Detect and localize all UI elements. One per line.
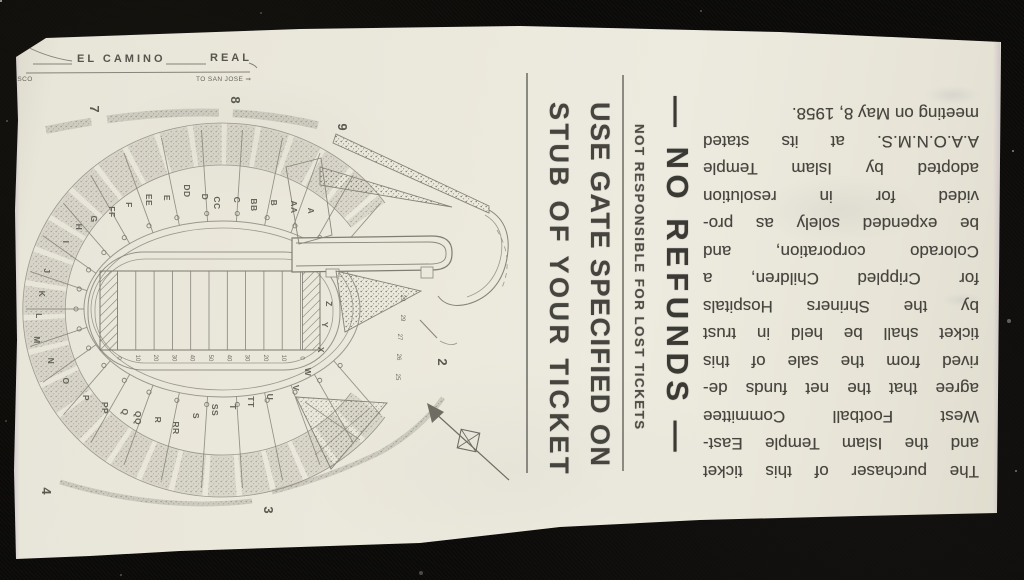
legal-paragraph: The purchaser of this ticket and the Isl… bbox=[703, 100, 979, 485]
yard-number: 40 bbox=[225, 355, 231, 362]
aisle-dot bbox=[77, 327, 81, 331]
no-refunds-heading: — NO REFUNDS — bbox=[649, 96, 695, 474]
road-label-real: REAL bbox=[210, 52, 252, 64]
legal-line: ticket shall be held in trust bbox=[703, 320, 979, 348]
section-label: R bbox=[153, 417, 163, 424]
section-label: A bbox=[306, 208, 316, 215]
rule-line-right bbox=[622, 75, 624, 471]
section-label: FF bbox=[107, 206, 117, 217]
section-label: P bbox=[81, 395, 91, 401]
gate-number: 9 bbox=[335, 123, 350, 130]
legal-line: vided for in resolution bbox=[703, 183, 979, 211]
section-label: K bbox=[37, 291, 47, 298]
legal-line: by the Shriners Hospitals bbox=[703, 293, 979, 321]
row-number: 25 bbox=[394, 374, 400, 381]
section-label: QQ bbox=[133, 411, 143, 425]
yard-number: 40 bbox=[189, 355, 195, 362]
section-label: SS bbox=[210, 404, 220, 416]
yard-number: 50 bbox=[207, 355, 213, 362]
gate-number: 4 bbox=[39, 487, 54, 495]
legal-line: for Crippled Children, a bbox=[703, 265, 979, 293]
rule-line-left bbox=[526, 73, 528, 473]
dust-specks bbox=[0, 0, 2, 2]
gate-number: 3 bbox=[261, 506, 276, 513]
section-label: E bbox=[162, 195, 172, 201]
section-label: U bbox=[265, 394, 275, 401]
entrance-tunnel bbox=[292, 236, 452, 278]
section-label: EE bbox=[144, 194, 154, 206]
road-el-camino-real: EL CAMINO REAL SAN FRANCISCO TO SAN JOSE… bbox=[0, 42, 257, 83]
aisle-dot bbox=[102, 363, 106, 367]
row-number: 27 bbox=[396, 334, 402, 341]
road-label-el-camino: EL CAMINO bbox=[77, 53, 166, 65]
section-label: C bbox=[232, 197, 242, 204]
section-label: Y bbox=[320, 322, 330, 328]
yard-number: 20 bbox=[152, 355, 158, 362]
aisle-dot bbox=[77, 287, 81, 291]
section-label: O bbox=[61, 377, 71, 384]
use-gate-line2: STUB OF YOUR TICKET bbox=[538, 102, 579, 478]
section-label: DD bbox=[182, 184, 192, 197]
section-label: H bbox=[74, 224, 84, 231]
section-label: S bbox=[191, 413, 201, 419]
ticket: EL CAMINO REAL SAN FRANCISCO TO SAN JOSE… bbox=[0, 0, 1024, 580]
aisle-spoke bbox=[236, 397, 242, 488]
legal-line: rived from the sale of this bbox=[703, 348, 979, 376]
legal-line: adopted by Islam Temple bbox=[703, 155, 979, 183]
gate-number: 8 bbox=[228, 96, 243, 103]
aisle-dot bbox=[338, 363, 342, 367]
legal-line: The purchaser of this ticket bbox=[703, 458, 979, 486]
section-label: M bbox=[32, 336, 42, 344]
use-gate-line1: USE GATE SPECIFIED ON bbox=[579, 102, 620, 478]
yard-number: 10 bbox=[134, 355, 140, 362]
section-label: B bbox=[269, 200, 279, 207]
row-number: 29 bbox=[399, 315, 405, 322]
section-label: T bbox=[228, 404, 238, 410]
photo-of-ticket-back: EL CAMINO REAL SAN FRANCISCO TO SAN JOSE… bbox=[0, 0, 1024, 580]
section-label: J bbox=[42, 268, 52, 273]
yard-number: 30 bbox=[170, 355, 176, 362]
section-label: BB bbox=[249, 198, 259, 211]
yard-number: 20 bbox=[262, 355, 268, 362]
section-label: W bbox=[303, 368, 313, 377]
section-label: G bbox=[89, 215, 99, 222]
use-gate-instruction: USE GATE SPECIFIED ON STUB OF YOUR TICKE… bbox=[536, 102, 620, 478]
yard-lines bbox=[118, 271, 301, 350]
row-number: 26 bbox=[395, 354, 401, 361]
section-label: I bbox=[61, 241, 71, 244]
yard-number: 10 bbox=[280, 355, 286, 362]
legal-line: and the Islam Temple East- bbox=[703, 430, 979, 458]
section-label: TT bbox=[246, 396, 256, 408]
section-label: N bbox=[46, 358, 56, 365]
gate-number: 2 bbox=[435, 358, 450, 365]
aisle-dot bbox=[102, 250, 106, 254]
section-label: RR bbox=[171, 421, 181, 434]
section-label: CC bbox=[212, 196, 222, 209]
legal-line: West Football Committee bbox=[703, 403, 979, 431]
yard-number: 30 bbox=[244, 355, 250, 362]
north-arrow-compass bbox=[427, 403, 509, 480]
legal-line: agree that the net funds de- bbox=[703, 375, 979, 403]
legal-line: Colorado corporation, and bbox=[703, 238, 979, 266]
section-label: V bbox=[291, 385, 301, 391]
legal-line: meeting on May 8, 1958. bbox=[703, 100, 979, 128]
section-label: PP bbox=[100, 402, 110, 414]
section-label: X bbox=[316, 347, 326, 353]
gate-number: 7 bbox=[87, 105, 102, 112]
legal-line: A.A.O.N.M.S. at its stated bbox=[703, 128, 979, 156]
road-label-san-francisco: SAN FRANCISCO bbox=[0, 76, 33, 83]
aisle-dot bbox=[175, 216, 179, 220]
section-label: D bbox=[200, 194, 210, 201]
section-label: F bbox=[124, 202, 134, 208]
section-label: L bbox=[34, 313, 44, 319]
aisle-dot bbox=[175, 398, 179, 402]
legal-line: be expended solely as pro- bbox=[703, 210, 979, 238]
row-number: 29 bbox=[399, 295, 405, 302]
lost-tickets-notice: NOT RESPONSIBLE FOR LOST TICKETS bbox=[625, 124, 647, 456]
section-label: Z bbox=[324, 301, 334, 307]
road-label-to-san-jose: TO SAN JOSE ⇒ bbox=[196, 76, 251, 83]
aisle-spoke bbox=[202, 397, 208, 488]
yard-number: 0 bbox=[116, 356, 122, 360]
section-label: Q bbox=[120, 408, 130, 415]
aisle-dot bbox=[265, 216, 269, 220]
section-label: AA bbox=[289, 200, 299, 213]
